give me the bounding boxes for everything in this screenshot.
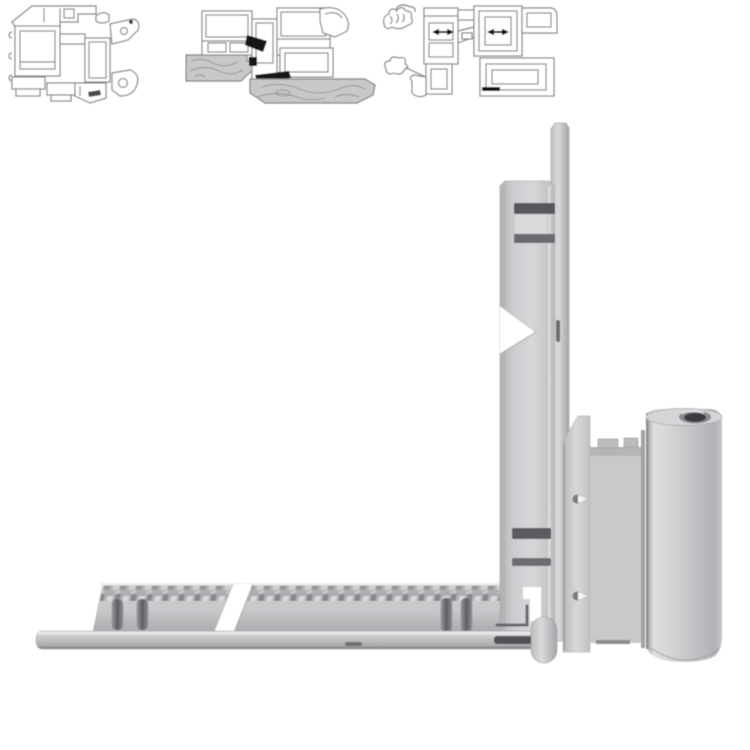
keeper-slot — [512, 528, 551, 539]
hinge-mid-section — [590, 430, 645, 648]
keeper-slot — [514, 234, 555, 243]
arm-groove — [112, 599, 123, 630]
vertical-faceplate — [500, 181, 555, 648]
corner-hinge-photo — [0, 0, 750, 750]
arm-groove — [441, 598, 452, 632]
product-image — [0, 0, 750, 750]
hinge-tab — [598, 439, 618, 448]
bottom-slide-rail — [36, 631, 545, 649]
arm-groove — [461, 598, 472, 632]
keeper-slot — [514, 203, 555, 214]
rail-notch-mark — [556, 320, 560, 342]
knurled-edge — [100, 584, 551, 601]
rail-mark — [345, 642, 362, 646]
hinge-barrel — [646, 409, 722, 663]
keeper-slot — [512, 558, 551, 566]
pin-socket — [679, 411, 711, 424]
arm-groove — [137, 599, 148, 630]
horizontal-arm — [93, 583, 551, 632]
hinge-leaf — [563, 416, 590, 652]
rail-foot — [531, 617, 557, 663]
hinge-tab — [624, 438, 638, 447]
